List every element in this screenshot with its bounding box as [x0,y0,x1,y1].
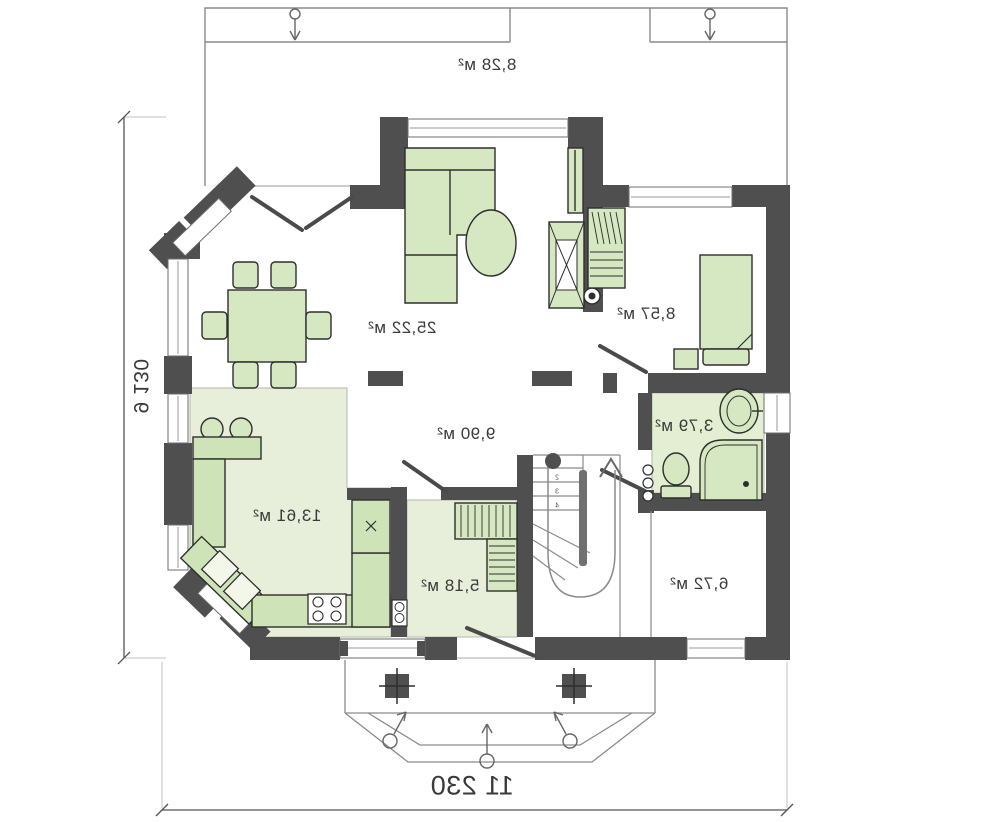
room-label-bedroom: 8,57 м² [617,304,676,324]
chair [306,312,331,339]
stair-step-number: 2 [555,475,559,482]
stair-stringer [579,470,587,566]
height-dimension-label: 9 130 [128,358,152,413]
roof-slope-arrow-icon [290,9,300,40]
room-label-bathroom: 3,79 м² [655,416,714,436]
porch [345,660,655,768]
pillow [703,349,749,365]
staircase [533,453,651,637]
chair [233,362,258,388]
chair [233,262,258,288]
room-label-wardrobe: 5,18 м² [421,576,480,596]
room-label-entry: 6,72 м² [670,574,729,594]
chair [271,362,296,388]
terrace-door-leaf [306,197,352,228]
room-label-hall: 9,90 м² [437,424,496,444]
stair-step-number: 3 [555,489,559,496]
chair [271,262,296,288]
room-label-living: 25,22 м² [368,318,437,338]
shower [700,440,762,500]
radiator [643,465,653,501]
stair-step-number: 4 [555,503,559,510]
width-dimension-label: 11 230 [430,771,514,802]
porch-column [556,668,592,704]
bathroom-door-leaf [602,470,645,491]
wardrobe-door-leaf [404,462,447,492]
entry-arrow-icon [554,712,577,748]
terrace-door-leaf [252,197,302,230]
porch-column [379,668,415,704]
stair-step-number: 1 [555,461,559,468]
shower-drain [743,481,749,487]
width-dimension-line [156,804,793,816]
roof-slope-arrow-icon [705,9,715,40]
nightstand [674,349,698,369]
dining-table [228,290,306,362]
bedroom-furniture [588,208,752,369]
chair [202,312,227,339]
room-label-kitchen: 13,61 м² [253,506,322,526]
coffee-table [466,210,516,276]
stair-steps [533,455,651,637]
toilet [663,453,689,485]
bedroom-door-leaf [600,346,646,372]
room-label-terrace: 8,28 м² [458,55,517,75]
bed [700,255,752,349]
floor-plan: 8,28 м² 25,22 м² 8,57 м² 3,79 м² 9,90 м²… [0,0,1000,822]
